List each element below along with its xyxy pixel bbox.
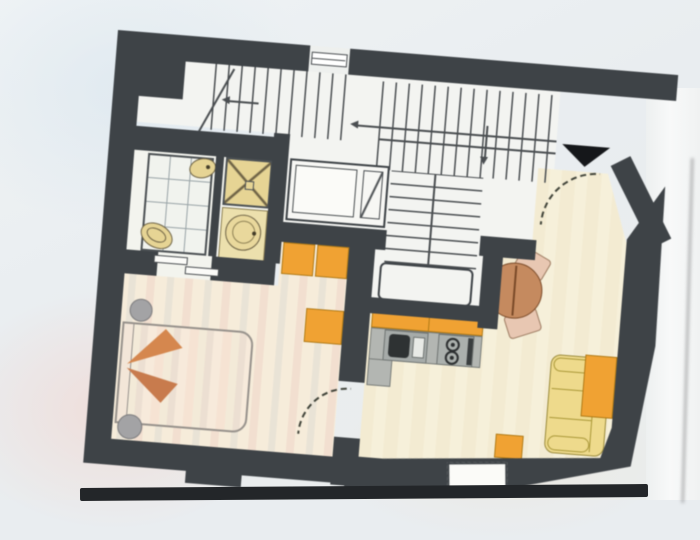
burner-2-center: [450, 356, 454, 360]
stair-flight-1: [210, 64, 355, 141]
side-table: [494, 434, 524, 460]
floor-plan: [81, 30, 691, 535]
stove-hob: [436, 334, 474, 368]
table-leaf-line: [511, 266, 517, 316]
sofa-armrest-bottom: [547, 435, 590, 453]
washbasin-tap: [252, 231, 256, 235]
stair-arrow-head-3: [479, 156, 488, 165]
washbasin: [224, 213, 263, 252]
paper-crease-streak: [681, 158, 694, 503]
shower-drain: [245, 181, 255, 191]
elevator-door-slot: [360, 170, 384, 219]
window-pane-line: [312, 57, 345, 61]
toilet-bowl: [144, 224, 169, 245]
wall-corner-step: [139, 58, 186, 99]
bidet-drain: [206, 165, 211, 170]
wardrobe-1: [281, 242, 315, 276]
stair-arrow-head-1: [221, 96, 230, 105]
hob-control-strip: [466, 338, 473, 365]
shower: [222, 157, 273, 209]
washbasin-panel: [218, 207, 268, 263]
burner-1-center: [451, 342, 455, 346]
sink-drainer: [412, 337, 426, 359]
stair-arrow-head-2: [350, 120, 359, 129]
sideboard: [581, 355, 618, 419]
wardrobe-2: [315, 245, 349, 279]
window-symbol: [311, 52, 348, 68]
burner-2: [444, 350, 459, 365]
stair-flight-2: [376, 81, 560, 183]
entrance-triangle-marker: [561, 144, 611, 169]
sink-bowl: [388, 334, 411, 359]
wardrobe-3: [304, 308, 345, 345]
burner-1: [445, 337, 460, 352]
elevator-shaft: [285, 158, 390, 228]
elevator-cab: [292, 165, 358, 218]
sofa-cushion-line-2: [549, 417, 591, 422]
photo-of-floor-plan: [0, 0, 700, 500]
sink-unit: [382, 329, 428, 363]
